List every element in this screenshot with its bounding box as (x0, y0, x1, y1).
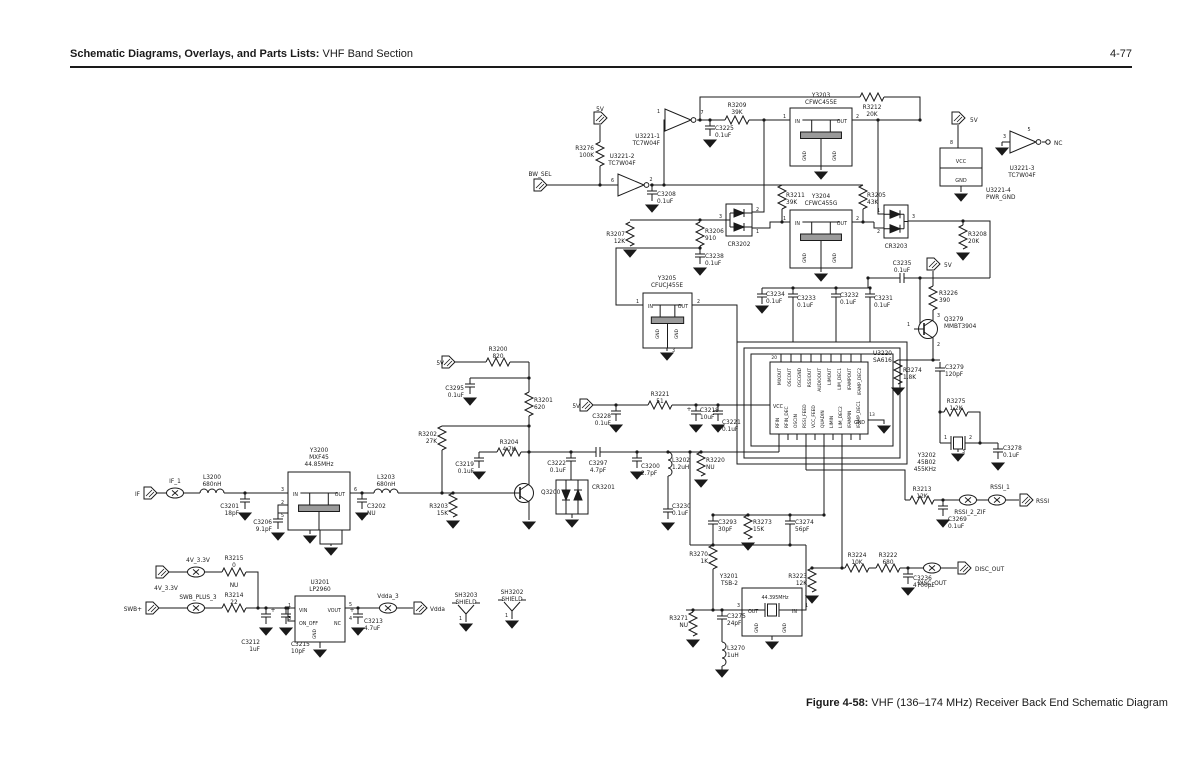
r3276-symbol (596, 142, 604, 166)
lbl-4v-pad: 4V_3.3V (154, 586, 178, 592)
pad-disc-out-symbol (958, 562, 971, 574)
ground-icon (464, 398, 476, 405)
filter-bar (801, 132, 842, 139)
lbl-u3220-b6: QUADIN (820, 410, 826, 428)
l3270-symbol (722, 642, 726, 666)
junction-dot (662, 183, 665, 186)
lbl-r3212: R321220K (863, 105, 882, 118)
ground-icon (314, 650, 326, 657)
lbl-u3201-pin4: 4 (349, 616, 352, 622)
ground-icon (447, 521, 459, 528)
ground-icon (878, 426, 890, 433)
lbl-y3205-pin3: 3 (672, 348, 675, 354)
schematic-symbols (144, 93, 1050, 677)
lbl-u3221-4: U3221-4PWR_GND (986, 188, 1016, 201)
pad-rssi-symbol (1020, 494, 1033, 506)
lbl-u3221-2-pin2: 2 (649, 177, 652, 183)
junction-dot (666, 450, 669, 453)
lbl-5v-c: 5V (970, 118, 978, 124)
lbl-u3221-3-pin3: 3 (1003, 134, 1006, 140)
lbl-u3220-t1: MIXOUT (777, 368, 783, 385)
c3235-symbol (894, 273, 910, 283)
lbl-y3202-pin3: 3 (962, 449, 965, 455)
r3203-symbol (449, 493, 457, 517)
wire (278, 505, 288, 513)
lbl-c3201: C320118pF (220, 504, 239, 517)
crystal-body (768, 604, 777, 616)
lbl-c3213: C32134.7uF (364, 619, 383, 632)
junction-dot (527, 424, 530, 427)
bus-loop-2-symbol (744, 348, 900, 458)
lbl-y3203-pin2: 2 (856, 114, 859, 120)
lbl-u3221-1-pin1: 1 (657, 109, 660, 115)
lbl-u3220-b2: RFIN_DEC (784, 406, 790, 428)
lbl-r3220: R3220NU (706, 458, 725, 471)
r3205-symbol (859, 185, 867, 209)
filter-bar (299, 505, 340, 512)
lbl-c3225: C32250.1uF (715, 126, 734, 139)
lbl-cr3202: CR3202 (728, 242, 751, 248)
lbl-r3273: R327315K (753, 520, 772, 533)
junction-dot (931, 358, 934, 361)
lbl-u3221-1: U3221-1TC7W04F (632, 134, 661, 147)
lbl-sh3202-pin1: 1 (505, 613, 508, 619)
c3228-symbol (611, 405, 621, 421)
lbl-vdda3: Vdda_3 (377, 594, 399, 600)
wire (752, 120, 764, 212)
lbl-c3231: C32310.1uF (874, 296, 893, 309)
lbl-c3200: C32002.7pF (641, 464, 660, 477)
lbl-y3203: Y3203CFWC455E (805, 93, 837, 106)
junction-dot (866, 276, 869, 279)
ground-icon (610, 425, 622, 432)
lbl-disc-pad: DISC_OUT (975, 567, 1005, 573)
lbl-y3200-out: OUT (335, 492, 345, 498)
r3208-symbol (959, 225, 967, 249)
y3200-gnd-box-symbol (320, 530, 342, 544)
junction-dot (840, 566, 843, 569)
lbl-rssi-pad: RSSI (1036, 499, 1049, 505)
lbl-c3221: C32210.1uF (722, 420, 741, 433)
r3270-symbol (709, 545, 717, 569)
lbl-y3200-pin3: 3 (281, 487, 284, 493)
lbl-y3201-in: IN (792, 609, 797, 615)
r3271-symbol (689, 612, 697, 636)
lbl-c3279: C3279120pF (945, 365, 964, 378)
wire (914, 278, 920, 329)
ground-icon (272, 533, 284, 540)
c3225-symbol (705, 120, 715, 136)
junction-dot (527, 450, 530, 453)
lbl-cr3202-pin3: 3 (719, 214, 722, 220)
ground-icon (352, 628, 364, 635)
lbl-u3220-b8: LIM_DEC2 (838, 406, 844, 428)
lbl-r3214: R321422 (225, 593, 244, 606)
junction-dot (688, 450, 691, 453)
c3274-symbol (785, 515, 795, 531)
lbl-u3220-b9: IFAMPIN (847, 411, 853, 428)
lbl-y3200-in: IN (293, 492, 298, 498)
lbl-r3211: R321139K (786, 193, 805, 206)
lbl-cr3201: CR3201 (592, 485, 615, 491)
lbl-c3202: C3202NU (367, 504, 386, 517)
lbl-cr3203-pin3: 3 (912, 214, 915, 220)
junction-dot (711, 608, 714, 611)
ground-icon (806, 596, 818, 603)
lbl-cr3202-pin1: 1 (756, 229, 759, 235)
lbl-u3220-t4: RSSIOUT (807, 368, 813, 388)
nc-terminal (1046, 140, 1050, 144)
ground-icon (624, 250, 636, 257)
lbl-u3220-t8: IFAMPOUT (847, 368, 853, 391)
r3211-symbol (778, 185, 786, 209)
lbl-q3279-pin3: 3 (937, 313, 940, 319)
c3297-symbol (590, 447, 606, 457)
junction-dot (876, 118, 879, 121)
lbl-y3200: Y3200MXF4544.85MHz (305, 448, 334, 468)
junction-dot (635, 450, 638, 453)
lbl-cr3202-pin2: 2 (756, 207, 759, 213)
r3207-symbol (626, 222, 634, 246)
ground-icon (704, 140, 716, 147)
figure-caption-text: VHF (136–174 MHz) Receiver Back End Sche… (868, 697, 1168, 709)
wire (246, 572, 258, 608)
lbl-u3220-vcc: VCC (773, 404, 784, 410)
ground-icon (815, 172, 827, 179)
junction-dot (256, 606, 259, 609)
u3201-symbol (295, 596, 345, 642)
lbl-r3205: R320543K (867, 193, 886, 206)
pad-swb-symbol (146, 602, 159, 614)
lbl-u3220-b1: RFIN (775, 418, 781, 428)
lbl-u3221-1-pin7: 7 (700, 110, 703, 116)
lbl-r3223: R322312K (788, 574, 807, 587)
lbl-y3205: Y3205CFUCJ455E (651, 276, 683, 289)
junction-dot (243, 491, 246, 494)
c3279-symbol (935, 362, 945, 378)
cr3201-symbol (556, 480, 588, 514)
lbl-c3218-plus: + (686, 406, 691, 413)
lbl-l3270: L32701uH (727, 646, 745, 659)
lbl-y3200-pin2: 2 (281, 500, 284, 506)
c3295-symbol (465, 378, 475, 394)
r3220-symbol (697, 452, 705, 476)
ground-icon (260, 628, 272, 635)
junction-dot (822, 513, 825, 516)
junction-dot (699, 450, 702, 453)
wire (692, 305, 737, 342)
lbl-u3220-t9: IFAMP_DEC2 (857, 368, 863, 395)
ground-icon (687, 640, 699, 647)
ground-icon (766, 642, 778, 649)
lbl-c3233: C32330.1uF (797, 296, 816, 309)
junction-dot (906, 566, 909, 569)
lbl-5v-b: 5V (944, 263, 952, 269)
pad-5v-c-symbol (952, 112, 965, 124)
junction-dot (961, 219, 964, 222)
lbl-y3200-pin6: 6 (354, 487, 357, 493)
lbl-u3201-gnd: GND (312, 629, 317, 639)
lbl-y3204-pin1: 1 (783, 216, 786, 222)
lbl-u3201-onoff: ON_OFF (299, 621, 318, 627)
ground-icon (902, 588, 914, 595)
lbl-r3271: R3271NU (669, 616, 688, 629)
junction-dot (708, 118, 711, 121)
lbl-r3200: R3200820 (489, 347, 508, 360)
lbl-l3202: L32021.2uH (672, 458, 690, 471)
junction-dot (360, 491, 363, 494)
lbl-cr3203: CR3203 (885, 244, 908, 250)
lbl-5v-e: 5V (572, 404, 580, 410)
lbl-if: IF (135, 492, 140, 498)
c3238-symbol (695, 248, 705, 264)
lbl-y3204: Y3204CFWC455G (805, 194, 838, 207)
junction-dot (614, 403, 617, 406)
lbl-u3220-b10: IFAMP_DEC1 (856, 401, 862, 428)
lbl-c3212: C32121uF (241, 640, 260, 653)
lbl-u3220-t5: AUDIOOUT (817, 368, 823, 392)
u3221-3-symbol (1010, 131, 1036, 153)
lbl-y3203-gnd1: GND (802, 151, 807, 161)
ground-icon (756, 306, 768, 313)
r3201-symbol (525, 392, 533, 416)
ground-icon (325, 548, 337, 555)
lbl-u3220-b4: RSSI_FEED (802, 404, 808, 428)
lbl-bw-sel: BW_SEL (529, 172, 553, 178)
r3273-symbol (744, 515, 752, 539)
r3223-symbol (808, 568, 816, 592)
lbl-r3201: R3201620 (534, 398, 553, 411)
junction-dot (938, 410, 941, 413)
lbl-l3203: L3203680nH (376, 475, 395, 488)
ground-icon (661, 353, 673, 360)
lbl-u3220-t2: OSCOUT (787, 368, 793, 387)
lbl-u3220-b5: VCC_FEED (811, 405, 817, 428)
lbl-c3219: C32190.1uF (455, 462, 474, 475)
lbl-u3201-pin1: 1 (288, 603, 291, 609)
lbl-c3222: C32220.1uF (547, 461, 566, 474)
pad-4v-symbol (156, 566, 169, 578)
ground-icon (566, 520, 578, 527)
junction-dot (810, 566, 813, 569)
lbl-sh3202: SH3202SHIELD (501, 590, 524, 603)
wire (884, 97, 920, 120)
lbl-y3202: Y320245B02455KHz (914, 453, 937, 473)
lbl-c3206: C32069.1pF (253, 520, 272, 533)
wire (752, 222, 790, 228)
lbl-u3221-2-pin6: 6 (611, 178, 614, 184)
lbl-r3222: R3222680 (879, 553, 898, 566)
c3293-symbol (708, 515, 718, 531)
ground-icon (716, 670, 728, 677)
lbl-y3203-out: OUT (837, 119, 847, 125)
junction-dot (716, 403, 719, 406)
lbl-4v-conn: 4V_3.3V (186, 558, 210, 564)
lbl-u3221-4-gnd: GND (955, 178, 967, 184)
lbl-y3201-freq: 44.395MHz (761, 595, 789, 601)
figure-caption-number: Figure 4-58: (806, 697, 868, 709)
junction-dot (356, 606, 359, 609)
junction-dot (691, 608, 694, 611)
lbl-u3220-t7: LIM_DEC1 (837, 368, 843, 390)
lbl-r3215: R32150 (225, 556, 244, 569)
lbl-c3278: C32780.1uF (1003, 446, 1022, 459)
ground-icon (957, 253, 969, 260)
ground-icon (992, 463, 1004, 470)
u3221-2-symbol (618, 174, 644, 196)
lbl-c3232: C32320.1uF (840, 293, 859, 306)
ground-icon (952, 454, 964, 461)
junction-dot (788, 543, 791, 546)
lbl-u3221-3: U3221-3TC7W04F (1007, 166, 1035, 179)
lbl-c3234: C32340.1uF (766, 292, 785, 305)
lbl-y3205-out: OUT (678, 304, 688, 310)
lbl-5v-d: 5V (436, 361, 444, 367)
lbl-c3235: C32350.1uF (893, 261, 912, 274)
lbl-c3230: C32300.1uF (672, 504, 691, 517)
lbl-c3275: C327524pF (727, 614, 746, 627)
lbl-l3200: L3200680nH (202, 475, 221, 488)
lbl-5v-a: 5V (596, 107, 604, 113)
c3278-symbol (993, 443, 1003, 459)
lbl-u3221-2: U3221-2TC7W04F (607, 154, 635, 167)
junction-dot (527, 376, 530, 379)
junction-dot (868, 286, 871, 289)
lbl-u3220-b3: OSCIN (793, 414, 799, 428)
lbl-r3209: R320939K (728, 103, 747, 116)
lbl-u3220-pin20: 20 (771, 355, 777, 361)
wire (963, 221, 990, 278)
wire (806, 470, 905, 500)
ground-icon (523, 522, 535, 529)
c3222-symbol (566, 452, 576, 468)
junction-dot (650, 183, 653, 186)
ground-icon (473, 472, 485, 479)
lbl-r3203: R320315K (429, 504, 448, 517)
junction-dot (720, 608, 723, 611)
lbl-y3204-pin2: 2 (856, 216, 859, 222)
ground-icon (695, 480, 707, 487)
lbl-u3201-pin3: 3 (288, 616, 291, 622)
lbl-q3279-pin1: 1 (907, 322, 910, 328)
filter-bar (651, 317, 683, 324)
c3202-symbol (357, 493, 367, 509)
junction-dot (941, 498, 944, 501)
lbl-u3220-pin13: 13 (869, 412, 875, 418)
lbl-u3220: U3220SA616 (873, 351, 892, 364)
ground-icon (646, 205, 658, 212)
lbl-sh3203-pin1: 1 (459, 616, 462, 622)
junction-dot (861, 220, 864, 223)
junction-dot (791, 286, 794, 289)
lbl-y3203-gnd2: GND (832, 151, 837, 161)
lbl-cr3203-pin2: 2 (877, 229, 880, 235)
junction-dot (698, 118, 701, 121)
lbl-u3201-vout: VOUT (328, 608, 341, 614)
l3203-symbol (374, 489, 398, 493)
lbl-y3205-pin2: 2 (697, 299, 700, 305)
ground-icon (955, 194, 967, 201)
junction-dot (694, 403, 697, 406)
manual-page: Schematic Diagrams, Overlays, and Parts … (0, 0, 1200, 776)
lbl-c3297: C32974.7pF (589, 461, 608, 474)
lbl-y3202-pin2: 2 (969, 435, 972, 441)
lbl-c3269: C32690.1uF (948, 517, 967, 530)
lbl-u3201: U3201LP2960 (309, 580, 331, 593)
ground-icon (690, 425, 702, 432)
lbl-y3205-pin1: 1 (636, 299, 639, 305)
r3206-symbol (696, 222, 704, 246)
filter-bar (801, 234, 842, 241)
lbl-disc-conn: DISC_OUT (917, 581, 947, 587)
lbl-r3215-nu: NU (230, 583, 239, 589)
lbl-y3204-gnd2: GND (832, 253, 837, 263)
lbl-y3200-pin5: 5 (281, 513, 284, 519)
junction-dot (440, 491, 443, 494)
lbl-y3203-pin1: 1 (783, 114, 786, 120)
lbl-rssi1: RSSI_1 (990, 485, 1010, 491)
c3269-symbol (938, 500, 948, 516)
lbl-y3204-in: IN (795, 221, 800, 227)
lbl-c3212-plus: + (270, 607, 275, 614)
ground-icon (280, 628, 292, 635)
ground-icon (662, 523, 674, 530)
lbl-r3270: R32701K (689, 552, 708, 565)
pad-vdda-symbol (414, 602, 427, 614)
figure-caption: Figure 4-58: VHF (136–174 MHz) Receiver … (806, 697, 1168, 709)
lbl-r3224: R322410K (848, 553, 867, 566)
r3209-symbol (725, 116, 749, 124)
lbl-y3201-pin3: 3 (737, 603, 740, 609)
ground-icon (239, 513, 251, 520)
l3202-symbol (668, 452, 672, 476)
lbl-swb3: SWB_PLUS_3 (179, 595, 217, 601)
lbl-u3220-t6: LIMOUT (827, 368, 833, 385)
lbl-u3221-3-pin5: 5 (1027, 127, 1030, 133)
lbl-c3213-plus: + (349, 607, 354, 614)
c3219-symbol (474, 452, 484, 468)
lbl-u3201-nc: NC (334, 621, 342, 627)
lbl-y3205-gnd2: GND (674, 329, 679, 339)
c3208-symbol (647, 185, 657, 201)
junction-dot (451, 491, 454, 494)
lbl-q3279-pin2: 2 (937, 342, 940, 348)
lbl-cr3203-pin1: 1 (877, 208, 880, 214)
u3221-1-symbol (665, 109, 691, 131)
lbl-u3220-t3: OSCGND (797, 367, 803, 387)
lbl-if1: IF_1 (169, 479, 181, 485)
lbl-u3221-4-vcc: VCC (956, 159, 967, 165)
lbl-u3220-b7: LIMIN (829, 416, 835, 428)
lbl-u3221-4-pin8: 8 (950, 140, 953, 146)
pad-5v-a-symbol (594, 112, 607, 124)
schematic-canvas: 5VR3276100KBW_SELU3221-2TC7W04F62U3221-1… (0, 0, 1200, 776)
lbl-c3208: C32080.1uF (657, 192, 676, 205)
inverter-bubble (644, 183, 649, 188)
l3200-symbol (200, 489, 224, 493)
junction-dot (598, 183, 601, 186)
junction-dot (264, 606, 267, 609)
lbl-r3208: R320820K (968, 232, 987, 245)
r3215-symbol (222, 568, 246, 576)
bus-loop-3-symbol (751, 354, 893, 446)
lbl-y3201-out: OUT (748, 609, 758, 615)
junction-dot (698, 246, 701, 249)
lbl-u3201-vin: VIN (299, 608, 308, 614)
lbl-y3203-in: IN (795, 119, 800, 125)
lbl-c3228: C32280.1uF (592, 414, 611, 427)
junction-dot (918, 118, 921, 121)
